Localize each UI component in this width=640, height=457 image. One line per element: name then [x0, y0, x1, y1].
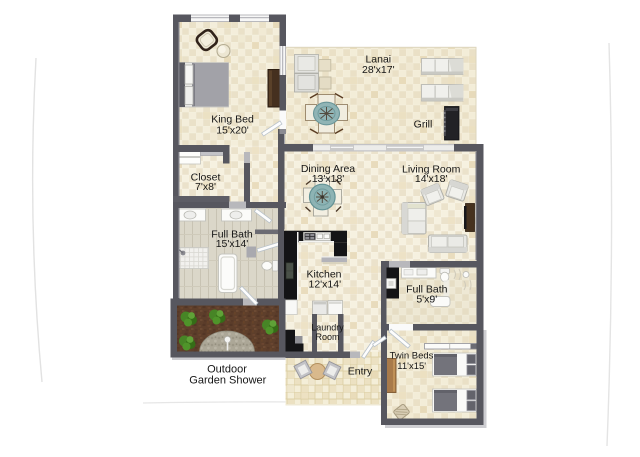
svg-text:15'x20': 15'x20' [216, 125, 249, 137]
svg-text:12'x14': 12'x14' [308, 279, 341, 291]
svg-text:Twin Beds: Twin Beds [390, 351, 434, 362]
svg-text:Garden Shower: Garden Shower [189, 375, 266, 387]
svg-text:Room: Room [315, 332, 339, 342]
svg-text:Laundry: Laundry [311, 323, 344, 333]
svg-text:7'x8': 7'x8' [195, 181, 216, 193]
svg-text:5'x9': 5'x9' [416, 294, 437, 306]
svg-text:Grill: Grill [414, 119, 433, 131]
svg-text:28'x17': 28'x17' [362, 64, 395, 76]
svg-text:15'x14': 15'x14' [216, 238, 249, 250]
svg-text:13'x18': 13'x18' [312, 173, 345, 185]
svg-text:11'x15': 11'x15' [397, 361, 426, 372]
svg-text:14'x18': 14'x18' [415, 173, 448, 185]
svg-text:Entry: Entry [348, 366, 373, 378]
